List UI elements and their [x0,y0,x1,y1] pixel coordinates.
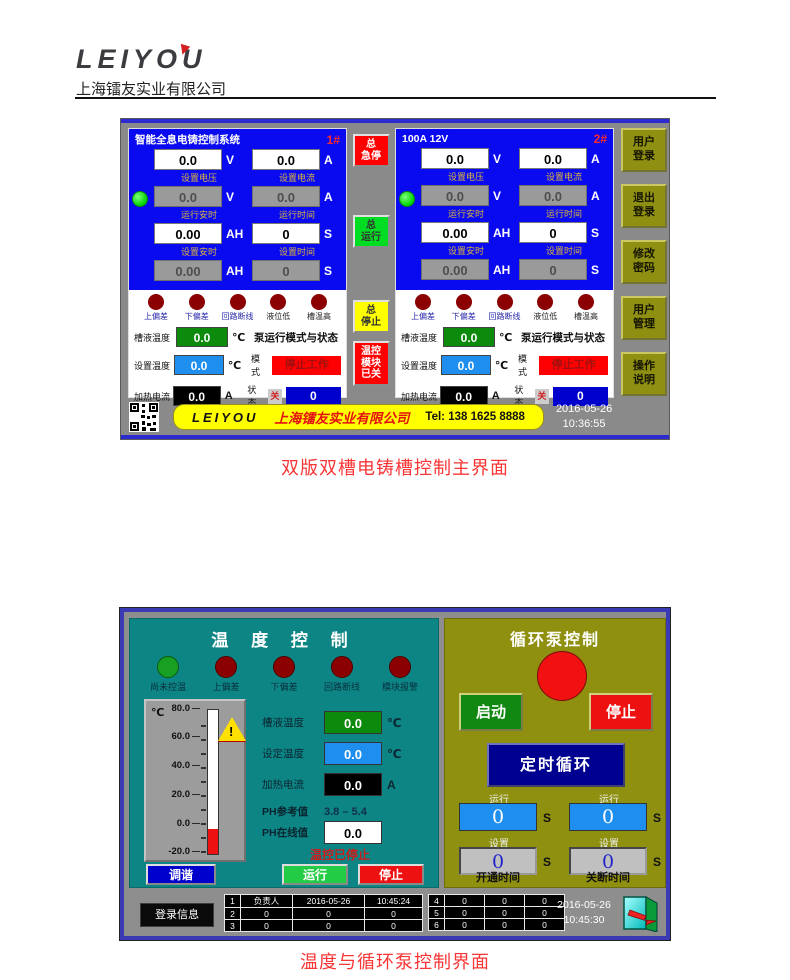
cell: 0 [241,920,293,932]
unit-amp: A [492,390,509,402]
label-line: 总 [355,139,388,151]
lamp-loop-break [331,656,353,678]
panel-2-title: 100A 12V [402,133,448,145]
level-low-label: 液位低 [258,311,298,322]
label-line: 说明 [633,374,655,388]
run-time-display: 0 [519,222,587,243]
date-text: 2016-05-26 [556,402,612,417]
set-temp-field[interactable]: 0.0 [441,355,491,375]
unit-celsius: ℃ [387,716,402,730]
pump-mode-header: 泵运行模式与状态 [254,330,338,345]
master-stop-button[interactable]: 总 停止 [353,300,390,333]
set-time-field[interactable]: 0 [252,260,320,281]
cell: 0 [365,908,423,920]
temp-high-label: 槽温高 [299,311,339,322]
alarm-lamp-loop-break [497,294,513,310]
heat-current-display: 0.0 [324,773,382,796]
unit-ah: AH [493,226,510,240]
label-line: 温控 [355,346,388,358]
date-text: 2016-05-26 [548,898,620,913]
banner-company-name: 上海镭友实业有限公司 [274,407,409,427]
power-indicator [399,191,415,207]
loop-break-label: 回路断线 [314,680,370,693]
pump-mode-button[interactable]: 停止工作 [539,356,608,375]
tank-temp-label: 槽液温度 [134,331,176,344]
set-time-label: 设置时间 [252,245,342,258]
pump-mode-button[interactable]: 停止工作 [272,356,341,375]
label-line: 管理 [633,318,655,332]
cell: 2 [225,908,241,920]
unit-ah: AH [493,263,510,277]
current-display: 0.0 [519,148,587,169]
lamp-upper-dev [215,656,237,678]
circulation-pump-panel: 循环泵控制 启动 停止 定时循环 运行 运行 0 S 0 S 设置 设置 0 S… [444,618,666,888]
alarm-lamp-level-low [537,294,553,310]
unit-amp: A [324,153,333,167]
timed-cycle-button[interactable]: 定时循环 [487,743,625,787]
label-line: 修改 [633,248,655,262]
lamp-lower-dev [273,656,295,678]
tank-panel-2-status-area: 上偏差 下偏差 回路断线 液位低 槽温高 槽液温度 0.0 ℃ 泵运行模式与状态… [396,290,613,397]
alarm-lamp-upper-dev [415,294,431,310]
banner-phone: Tel: 138 1625 8888 [425,411,525,423]
voltage-display: 0.0 [154,149,222,170]
unit-amp: A [387,778,396,792]
run-ah-label: 运行安时 [154,208,244,221]
label-line: 急停 [355,151,388,163]
tank-panel-2-meter-area: 100A 12V 2# 0.0V 0.0A 设置电压设置电流 0.0V 0.0A… [396,129,613,290]
minor-ticks [201,713,206,853]
lamp-module-alarm [389,656,411,678]
master-button-column: 总 急停 总 运行 总 停止 温控 模块 已关 [352,128,390,408]
login-table-2: 4000 5000 6000 [428,894,565,931]
unit-celsius: ℃ [499,331,517,344]
run-off-time-display: 0 [569,803,647,831]
cell: 0 [445,895,485,907]
set-current-field[interactable]: 0.0 [519,185,587,206]
alarm-lamp-lower-dev [456,294,472,310]
qr-code [129,402,159,432]
set-voltage-label: 设置电压 [421,170,511,183]
tank-panel-1-status-area: 上偏差 下偏差 回路断线 液位低 槽温高 槽液温度 0.0 ℃ 泵运行模式与状态… [129,290,346,397]
cell: 3 [225,920,241,932]
pump-start-button[interactable]: 启动 [459,693,523,731]
user-management-button[interactable]: 用户 管理 [621,296,667,340]
not-controlling-label: 尚未控温 [140,680,196,693]
run-on-time-display: 0 [459,803,537,831]
temp-module-off-button[interactable]: 温控 模块 已关 [353,341,390,386]
login-info-button[interactable]: 登录信息 [140,903,214,927]
alarm-lamp-upper-dev [148,294,164,310]
set-ah-label: 设置安时 [421,244,511,257]
table-row: 1负责人2016-05-2610:45:24 [225,895,423,908]
unit-s: S [543,855,551,869]
on-time-label: 开通时间 [453,869,543,885]
operation-help-button[interactable]: 操作 说明 [621,352,667,396]
header-divider [75,97,716,99]
unit-celsius: ℃ [232,331,250,344]
temperature-panel-title: 温 度 控 制 [130,626,438,651]
cell: 1 [225,895,241,908]
ph-online-display: 0.0 [324,821,382,844]
cell: 负责人 [241,895,293,908]
tank-temp-display: 0.0 [176,327,228,347]
table-row: 4000 [429,895,565,907]
set-time-field[interactable]: 0 [519,259,587,280]
temp-control-status-text: 温控已停止 [250,846,430,863]
set-voltage-label: 设置电压 [154,171,244,184]
set-ah-field[interactable]: 0.00 [421,259,489,280]
tick-0: 0.0 [156,818,200,829]
upper-dev-label: 上偏差 [403,311,443,322]
tank-temp-display: 0.0 [324,711,382,734]
set-temp-label: 设置温度 [401,359,441,372]
module-alarm-label: 模块报警 [372,680,428,693]
cell: 0 [293,908,365,920]
unit-volt: V [493,189,501,203]
set-ah-label: 设置安时 [154,245,244,258]
logout-button[interactable]: 退出 登录 [621,184,667,228]
unit-celsius: ℃ [387,747,402,761]
table-row: 5000 [429,907,565,919]
mode-label: 模式 [518,352,535,378]
master-run-button[interactable]: 总 运行 [353,215,390,248]
label-line: 模块 [355,358,388,370]
run-ah-label: 运行安时 [421,207,511,220]
panel-1-title: 智能全息电铸控制系统 [135,132,240,147]
off-time-label: 关断时间 [563,869,653,885]
unit-s: S [591,263,599,277]
cell: 0 [485,907,525,919]
tank-temp-label: 槽液温度 [262,715,324,730]
login-table-1: 1负责人2016-05-2610:45:24 2000 3000 [224,894,423,932]
pump-panel-title: 循环泵控制 [445,626,665,650]
label-line: 总 [355,220,388,232]
unit-s: S [543,811,551,825]
set-temp-label: 设置温度 [134,359,174,372]
set-ah-field[interactable]: 0.00 [154,260,222,281]
unit-ah: AH [226,264,243,278]
lower-dev-label: 下偏差 [177,311,217,322]
pump-stop-button[interactable]: 停止 [589,693,653,731]
run-ah-display: 0.00 [154,223,222,244]
unit-s: S [324,264,332,278]
cell: 0 [485,895,525,907]
tick-20: 20.0 [156,789,200,800]
change-password-button[interactable]: 修改 密码 [621,240,667,284]
label-line: 操作 [633,360,655,374]
company-banner: LEIYOU 上海镭友实业有限公司 Tel: 138 1625 8888 [173,404,544,430]
cell: 5 [429,907,445,919]
tank-panel-1-meter-area: 智能全息电铸控制系统 1# 0.0V 0.0A 设置电压设置电流 0.0V 0.… [129,129,346,290]
set-time-label: 设置时间 [519,244,609,257]
datetime-display: 2016-05-26 10:36:55 [556,402,612,432]
alarm-lamp-level-low [270,294,286,310]
run-ah-display: 0.00 [421,222,489,243]
set-current-field[interactable]: 0.0 [252,186,320,207]
tank-temp-label: 槽液温度 [401,331,443,344]
ph-online-label: PH在线值 [262,825,324,840]
unit-celsius: ℃ [228,359,245,372]
cell: 0 [293,920,365,932]
label-line: 运行 [355,232,388,244]
time-text: 10:36:55 [556,417,612,432]
label-line: 用户 [633,304,655,318]
cell: 2016-05-26 [293,895,365,908]
run-time-label: 运行时间 [519,207,609,220]
banner-logo-text: LEIYOU [192,410,258,425]
electroforming-main-screen: 智能全息电铸控制系统 1# 0.0V 0.0A 设置电压设置电流 0.0V 0.… [120,118,670,440]
unit-s: S [653,855,661,869]
label-line: 停止 [355,317,388,329]
tank-panel-1: 智能全息电铸控制系统 1# 0.0V 0.0A 设置电压设置电流 0.0V 0.… [128,128,347,398]
bottom-strip [121,435,669,439]
run-time-label: 运行时间 [252,208,342,221]
set-voltage-field[interactable]: 0.0 [421,185,489,206]
panel-1-number: 1# [327,133,340,147]
tune-button[interactable]: 调谐 [146,864,216,885]
upper-dev-label: 上偏差 [198,680,254,693]
time-text: 10:45:30 [548,913,620,928]
unit-amp: A [591,189,600,203]
warning-triangle-icon [218,717,246,741]
screenshot-2-caption: 温度与循环泵控制界面 [0,948,790,974]
alarm-lamp-temp-high [578,294,594,310]
unit-ah: AH [226,227,243,241]
ph-reference-range: 3.8 – 5.4 [324,806,367,818]
cell: 0 [445,919,485,931]
temp-pump-control-screen: 温 度 控 制 尚未控温 上偏差 下偏差 回路断线 模块报警 ℃ 80.0 60… [120,608,670,940]
run-time-display: 0 [252,223,320,244]
set-current-label: 设置电流 [519,170,609,183]
lower-dev-label: 下偏差 [256,680,312,693]
login-info-bar: 登录信息 1负责人2016-05-2610:45:24 2000 3000 40… [128,894,662,934]
tick-80: 80.0 [156,703,200,714]
level-low-label: 液位低 [525,311,565,322]
panel-2-number: 2# [594,132,607,146]
pump-mode-header: 泵运行模式与状态 [521,330,605,345]
cell: 6 [429,919,445,931]
unit-s: S [324,227,332,241]
tank-temp-display: 0.0 [443,327,495,347]
tick-40: 40.0 [156,760,200,771]
unit-amp: A [225,390,242,402]
cell: 10:45:24 [365,895,423,908]
lamp-not-controlling [157,656,179,678]
set-temp-label: 设定温度 [262,746,324,761]
user-login-button[interactable]: 用户 登录 [621,128,667,172]
thermometer-gauge: ℃ 80.0 60.0 40.0 20.0 0.0 -20.0 [144,699,246,862]
table-row: 6000 [429,919,565,931]
master-emergency-stop-button[interactable]: 总 急停 [353,134,390,167]
label-line: 登录 [633,150,655,164]
heat-current-label: 加热电流 [401,390,440,403]
cell: 0 [485,919,525,931]
temp-high-label: 槽温高 [566,311,606,322]
unit-amp: A [591,152,600,166]
power-indicator [132,191,148,207]
user-button-column: 用户 登录 退出 登录 修改 密码 用户 管理 操作 说明 [619,128,669,408]
exit-door-icon[interactable] [622,894,660,932]
tick-neg20: -20.0 [156,846,200,857]
current-display: 0.0 [252,149,320,170]
thermometer-mercury [208,829,218,854]
table-row: 2000 [225,908,423,920]
mode-label: 模式 [251,352,268,378]
table-row: 3000 [225,920,423,932]
unit-celsius: ℃ [495,359,512,372]
set-temp-field[interactable]: 0.0 [324,742,382,765]
label-line: 总 [355,305,388,317]
unit-volt: V [493,152,501,166]
cell: 0 [445,907,485,919]
loop-break-label: 回路断线 [218,311,258,322]
label-line: 密码 [633,262,655,276]
alarm-lamp-loop-break [230,294,246,310]
upper-dev-label: 上偏差 [136,311,176,322]
temp-run-button[interactable]: 运行 [282,864,348,885]
company-name: 上海镭友实业有限公司 [76,78,226,99]
cell: 4 [429,895,445,907]
label-line: 登录 [633,206,655,220]
unit-volt: V [226,190,234,204]
screenshot-1-caption: 双版双槽电铸槽控制主界面 [0,454,790,480]
set-current-label: 设置电流 [252,171,342,184]
datetime-display: 2016-05-26 10:45:30 [548,898,620,927]
pump-status-lamp [537,651,587,701]
leiyou-logo: LEIYOU [76,44,207,75]
ph-reference-label: PH参考值 [262,804,324,819]
tick-60: 60.0 [156,731,200,742]
temp-stop-button[interactable]: 停止 [358,864,424,885]
unit-s: S [653,811,661,825]
set-temp-field[interactable]: 0.0 [174,355,224,375]
document-page: LEIYOU 上海镭友实业有限公司 智能全息电铸控制系统 1# 0.0V 0.0… [0,0,790,980]
label-line: 用户 [633,136,655,150]
voltage-display: 0.0 [421,148,489,169]
label-line: 已关 [355,369,388,381]
cell: 0 [365,920,423,932]
temperature-control-panel: 温 度 控 制 尚未控温 上偏差 下偏差 回路断线 模块报警 ℃ 80.0 60… [129,618,439,888]
tank-panel-2: 100A 12V 2# 0.0V 0.0A 设置电压设置电流 0.0V 0.0A… [395,128,614,398]
unit-s: S [591,226,599,240]
cell: 0 [241,908,293,920]
set-voltage-field[interactable]: 0.0 [154,186,222,207]
loop-break-label: 回路断线 [485,311,525,322]
lower-dev-label: 下偏差 [444,311,484,322]
label-line: 退出 [633,192,655,206]
unit-amp: A [324,190,333,204]
alarm-lamp-lower-dev [189,294,205,310]
heat-current-label: 加热电流 [134,390,173,403]
top-strip [121,119,669,123]
heat-current-label: 加热电流 [262,777,324,792]
alarm-lamp-temp-high [311,294,327,310]
unit-volt: V [226,153,234,167]
